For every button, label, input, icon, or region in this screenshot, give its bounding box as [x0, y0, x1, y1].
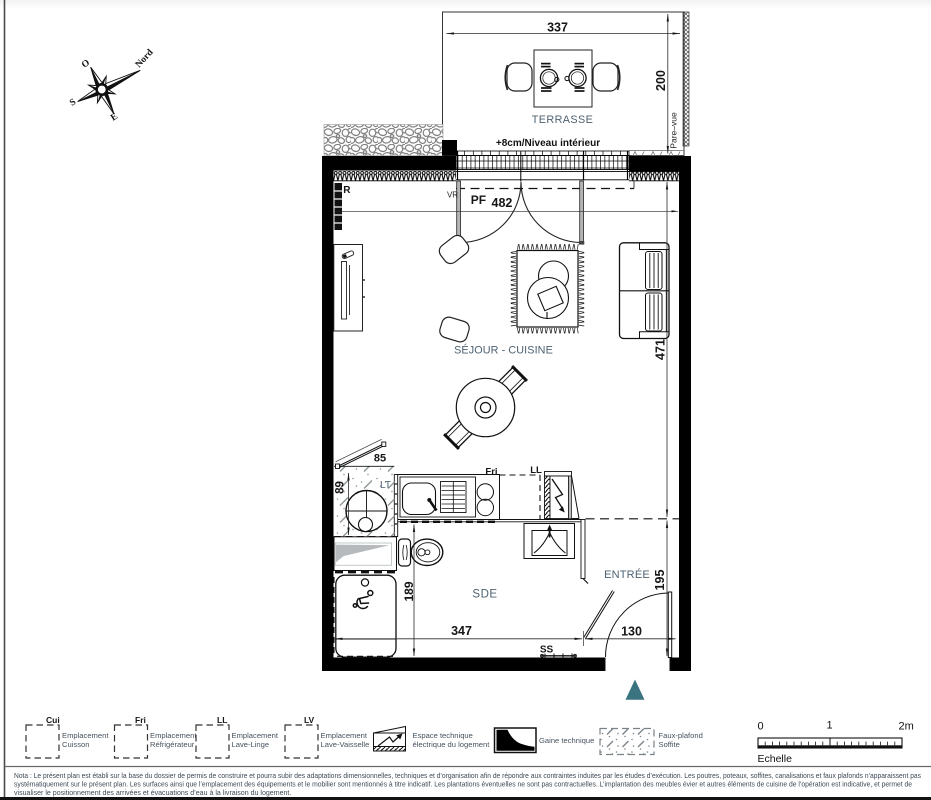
svg-text:LL: LL [217, 715, 227, 725]
svg-text:LV: LV [304, 715, 315, 725]
svg-text:130: 130 [621, 625, 642, 639]
svg-text:0: 0 [758, 721, 764, 733]
svg-text:89: 89 [335, 481, 347, 494]
svg-text:347: 347 [451, 624, 472, 638]
svg-text:ENTRÉE: ENTRÉE [604, 568, 650, 581]
svg-text:482: 482 [492, 196, 513, 210]
svg-text:SS: SS [540, 645, 554, 656]
svg-text:électrique du logement: électrique du logement [413, 740, 491, 749]
svg-text:TERRASSE: TERRASSE [532, 114, 593, 126]
svg-text:PF: PF [471, 193, 486, 207]
svg-text:VR: VR [447, 191, 458, 200]
svg-text:195: 195 [653, 570, 667, 591]
svg-text:2m: 2m [899, 721, 914, 733]
svg-text:Cui: Cui [46, 715, 60, 725]
svg-text:Emplacement: Emplacement [62, 731, 109, 740]
svg-text:LT: LT [380, 480, 391, 491]
svg-text:Lave-Vaisselle: Lave-Vaisselle [321, 740, 370, 749]
svg-text:Emplacement: Emplacement [321, 731, 368, 740]
svg-text:Soffite: Soffite [659, 740, 680, 749]
svg-text:+8cm/Niveau intérieur: +8cm/Niveau intérieur [496, 138, 600, 149]
svg-text:Lave-Linge: Lave-Linge [232, 740, 270, 749]
svg-text:1: 1 [827, 720, 833, 732]
svg-text:Réfrigérateur: Réfrigérateur [150, 740, 195, 749]
svg-text:Espace technique: Espace technique [413, 731, 473, 740]
svg-text:visualiser le positionnement d: visualiser le positionnement des arrivée… [14, 790, 291, 797]
svg-text:200: 200 [654, 70, 668, 91]
svg-text:Fri: Fri [485, 467, 497, 478]
svg-text:Fri: Fri [135, 715, 146, 725]
svg-text:Emplacement: Emplacement [150, 731, 197, 740]
svg-text:R: R [343, 185, 351, 196]
svg-text:SDE: SDE [472, 589, 497, 601]
svg-text:337: 337 [547, 21, 568, 35]
svg-text:LL: LL [530, 465, 542, 476]
svg-text:471: 471 [654, 339, 668, 360]
svg-text:Pare–vue: Pare–vue [669, 112, 679, 149]
svg-text:Nota : Le présent plan est éta: Nota : Le présent plan est établi sur la… [14, 773, 921, 780]
svg-text:Faux-plafond: Faux-plafond [659, 731, 703, 740]
svg-text:Cuisson: Cuisson [62, 740, 89, 749]
svg-text:Emplacement: Emplacement [232, 731, 279, 740]
svg-text:Echelle: Echelle [758, 753, 793, 765]
svg-text:SÉJOUR - CUISINE: SÉJOUR - CUISINE [454, 344, 553, 357]
svg-text:85: 85 [374, 453, 386, 465]
svg-text:189: 189 [402, 581, 416, 601]
svg-text:Gaine technique: Gaine technique [539, 736, 594, 745]
svg-text:systématiquement sur le présen: systématiquement sur le présent plan. Le… [14, 782, 912, 789]
